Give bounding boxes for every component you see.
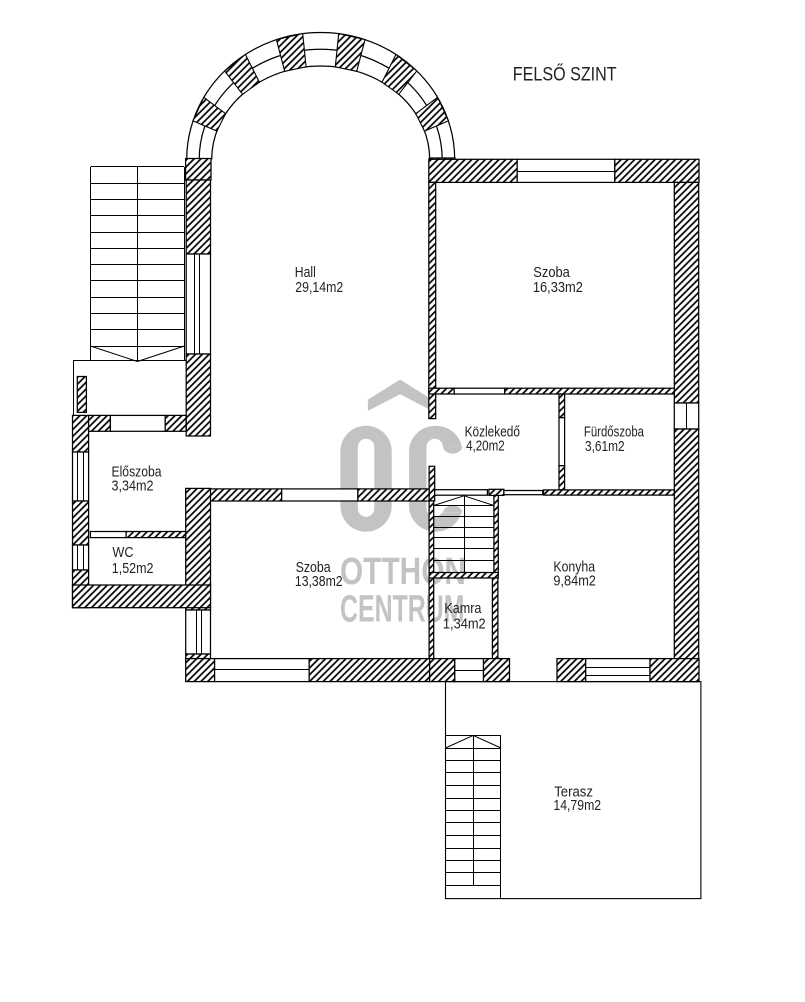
- svg-text:1,52m2: 1,52m2: [112, 561, 154, 577]
- svg-text:4,20m2: 4,20m2: [466, 438, 505, 454]
- svg-text:WC: WC: [112, 545, 133, 561]
- svg-text:16,33m2: 16,33m2: [533, 280, 583, 296]
- svg-text:3,34m2: 3,34m2: [112, 478, 154, 494]
- svg-text:14,79m2: 14,79m2: [553, 798, 601, 814]
- svg-text:3,61m2: 3,61m2: [585, 439, 625, 455]
- svg-text:1,34m2: 1,34m2: [443, 617, 486, 633]
- svg-text:9,84m2: 9,84m2: [553, 574, 596, 590]
- svg-text:29,14m2: 29,14m2: [295, 280, 343, 296]
- svg-text:Szoba: Szoba: [533, 265, 570, 281]
- svg-text:13,38m2: 13,38m2: [295, 574, 343, 590]
- svg-text:Kamra: Kamra: [444, 601, 481, 617]
- svg-text:FELSŐ SZINT: FELSŐ SZINT: [513, 62, 617, 85]
- svg-text:Hall: Hall: [295, 265, 316, 281]
